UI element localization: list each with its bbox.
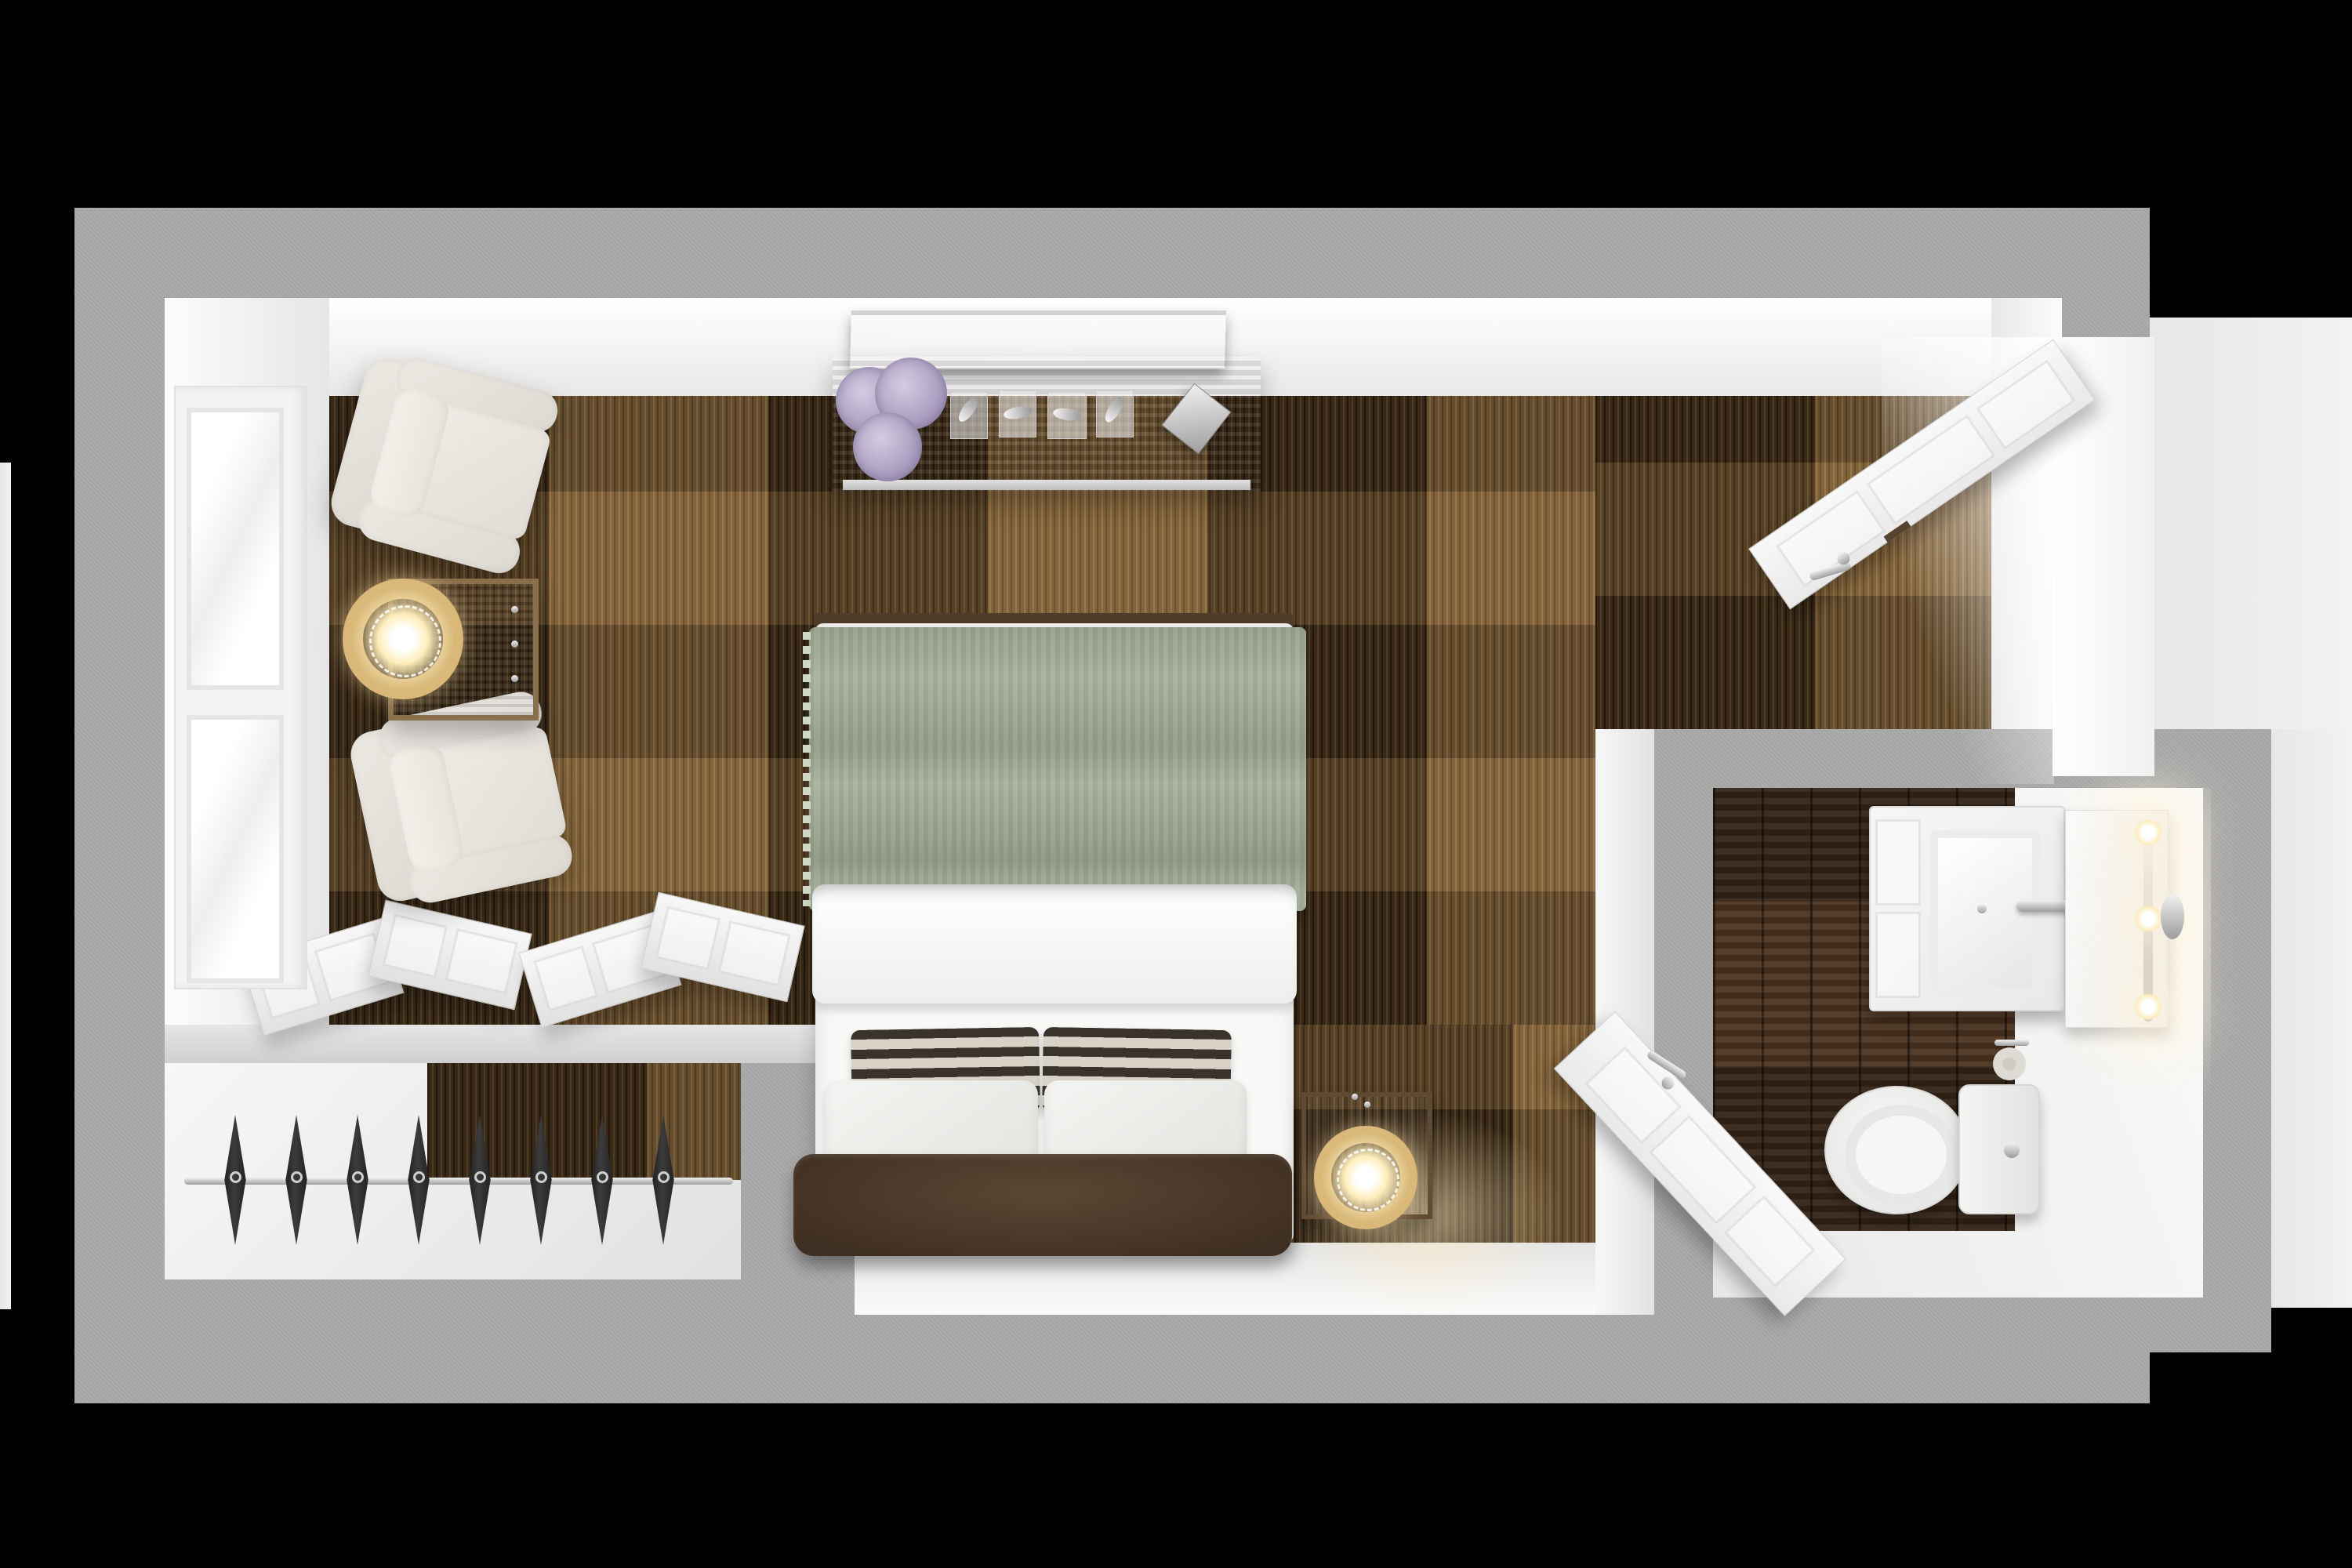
silver-bird-icon <box>1052 407 1082 423</box>
side-table-ring-lamp <box>343 579 463 699</box>
sink-drain <box>1977 904 1987 913</box>
lamp-coil <box>1337 1149 1399 1211</box>
toilet-seat-ring <box>1845 1105 1958 1205</box>
mirror-light <box>2135 993 2161 1020</box>
mirror-light <box>2135 819 2161 846</box>
hydrangea-arrangement <box>823 345 964 486</box>
lamp-coil <box>369 605 441 677</box>
flush-button <box>2004 1142 2020 1158</box>
drawer-knob <box>511 641 518 648</box>
window-pane-upper <box>187 408 284 690</box>
hydrangea-bloom <box>853 412 922 481</box>
tp-roll <box>1993 1047 2026 1080</box>
silver-figurine-stand <box>950 392 988 439</box>
drawer-knob <box>511 675 518 682</box>
toilet-bowl <box>1824 1086 1969 1214</box>
silver-figurine-stand <box>1096 390 1134 437</box>
vanity-sink <box>1930 830 2040 996</box>
crate-hardware <box>1352 1094 1358 1100</box>
silver-bird-icon <box>1003 405 1033 421</box>
wall-sconce <box>2161 894 2184 939</box>
headboard-bench <box>793 1154 1292 1256</box>
throw-fringe <box>803 632 811 906</box>
exterior-walkway-left-sliver <box>0 463 11 1309</box>
nightstand-ring-lamp <box>1314 1126 1417 1229</box>
silver-figurine-stand <box>1047 392 1087 439</box>
tp-arm <box>1994 1040 2029 1046</box>
silver-figurine-stand <box>999 390 1036 437</box>
window-pane-lower <box>187 715 284 983</box>
silver-bird-icon <box>956 394 982 424</box>
toilet-tank <box>1958 1084 2040 1214</box>
sage-throw <box>809 627 1306 911</box>
vanity-door-panel <box>1875 912 1921 998</box>
closet-rod <box>184 1178 733 1185</box>
folded-duvet <box>812 884 1297 1004</box>
silver-bird-icon <box>1102 394 1127 425</box>
floorplan-render <box>0 0 2352 1568</box>
exterior-walkway-right-top <box>2150 318 2352 729</box>
vanity-door-panel <box>1875 819 1921 906</box>
mirror-light <box>2135 906 2161 932</box>
drawer-knob <box>511 606 518 613</box>
toilet-paper-holder <box>1988 1038 2032 1083</box>
crate-hardware <box>1364 1102 1370 1108</box>
exterior-walkway-right-bottom <box>2271 729 2352 1308</box>
